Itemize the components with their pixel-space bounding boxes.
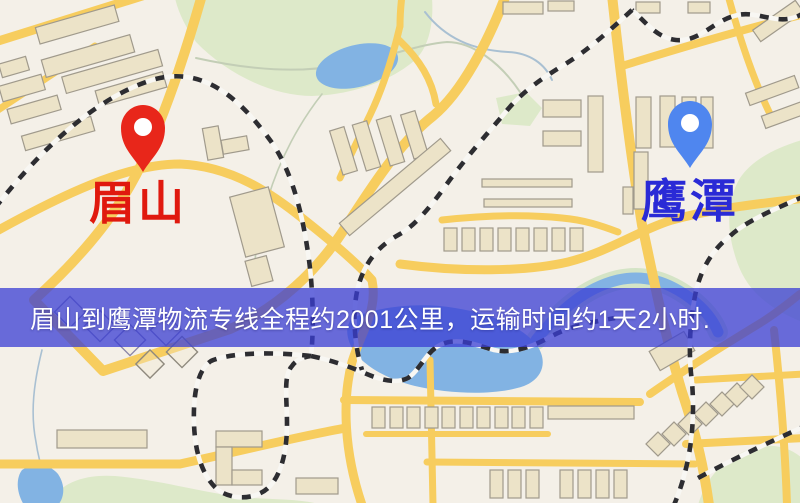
- destination-pin[interactable]: [668, 101, 712, 168]
- map-canvas[interactable]: 眉山 鹰潭: [0, 0, 800, 503]
- route-info-banner: 眉山到鹰潭物流专线全程约2001公里，运输时间约1天2小时.: [0, 288, 800, 347]
- map-pin-icon: [668, 101, 712, 168]
- origin-label: 眉山: [89, 178, 187, 229]
- buildings-layer: [0, 0, 800, 498]
- route-info-text: 眉山到鹰潭物流专线全程约2001公里，运输时间约1天2小时.: [30, 300, 710, 336]
- logistics-route-map: 眉山 鹰潭 眉山到鹰潭物流专线全程约2001公里，运输时间约1天2小时.: [0, 0, 800, 503]
- pin-hole: [134, 118, 152, 136]
- pin-hole: [681, 114, 699, 132]
- destination-label: 鹰潭: [641, 176, 739, 227]
